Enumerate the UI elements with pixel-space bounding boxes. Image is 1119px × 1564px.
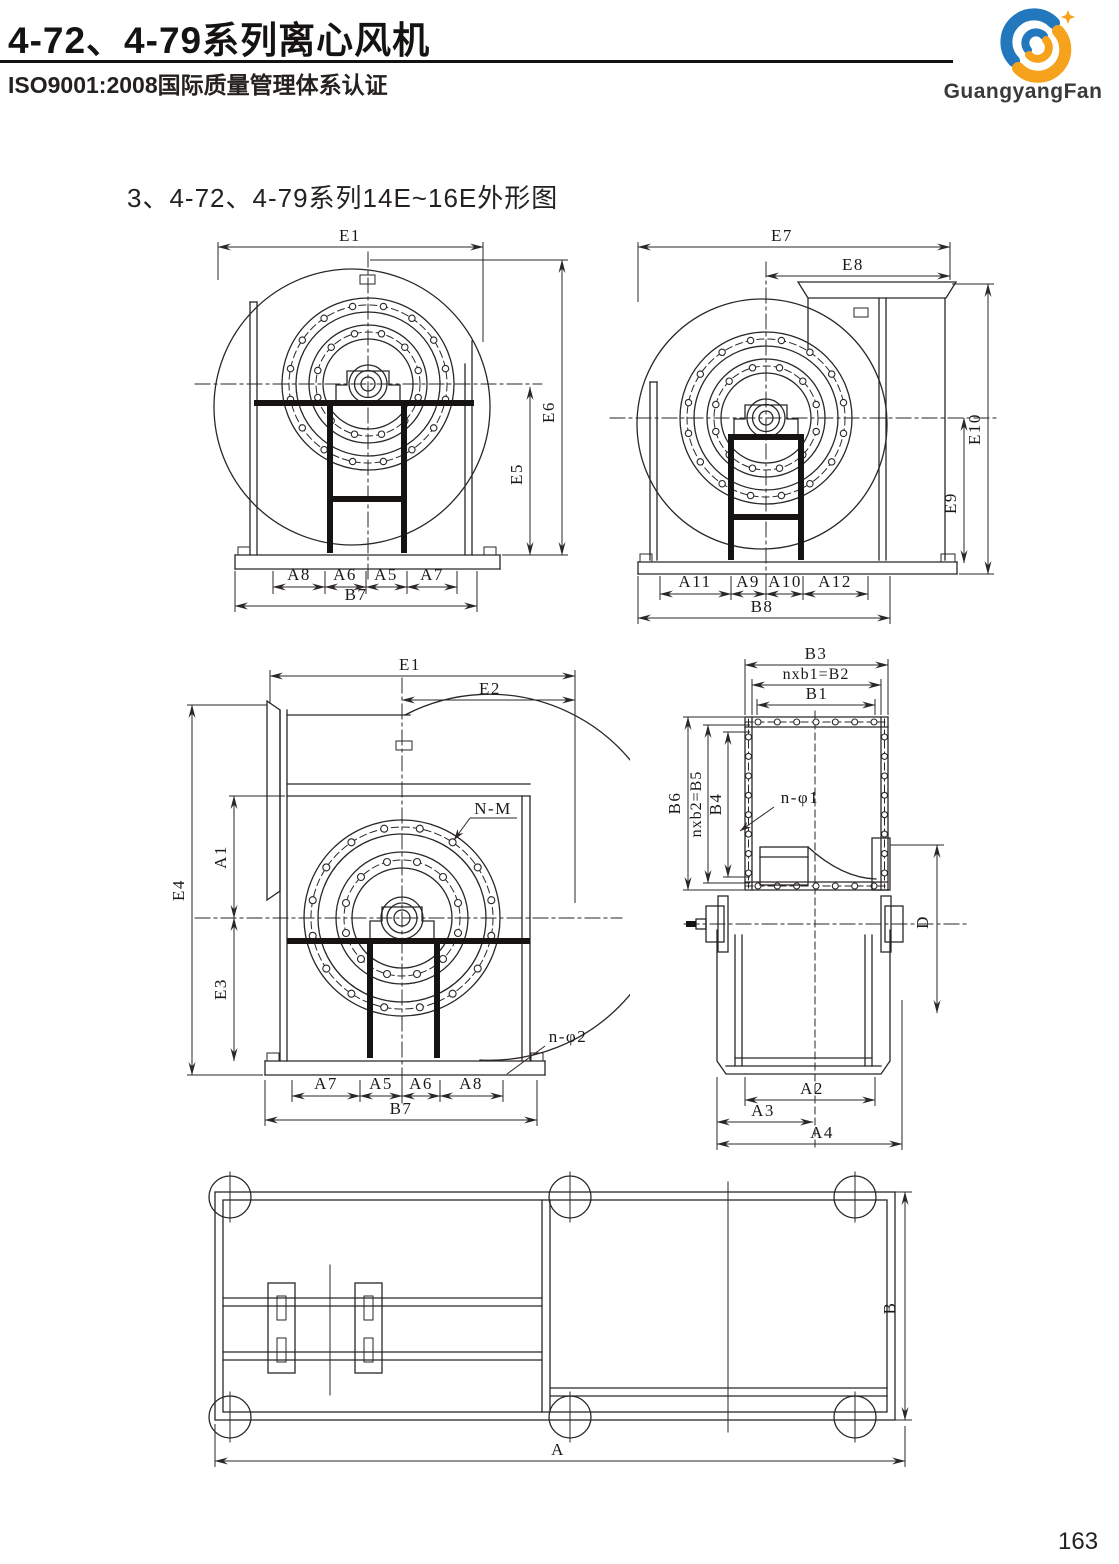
dim-label-e7: E7 xyxy=(771,226,793,245)
dim-label-e1: E1 xyxy=(339,226,361,245)
dim-bottom-chain: A11 A9 A10 A12 xyxy=(660,572,868,600)
dim-label-a4: A4 xyxy=(810,1123,834,1142)
support-stand xyxy=(287,941,530,1058)
dim-d: D xyxy=(913,845,937,1013)
dim-a4: A4 xyxy=(717,1000,902,1150)
base-frame-plan-view: B A xyxy=(190,1170,930,1490)
dim-a: A xyxy=(215,1424,905,1467)
dim-label-a11: A11 xyxy=(678,572,711,591)
centerlines xyxy=(610,262,1000,594)
catalog-page: 4-72、4-79系列离心风机 ISO9001:2008国际质量管理体系认证 G… xyxy=(0,0,1119,1564)
dim-b1: B1 xyxy=(757,684,875,715)
dim-label-b4: B4 xyxy=(706,793,725,816)
fan-housing xyxy=(267,694,630,1061)
dim-label-a6: A6 xyxy=(333,565,357,584)
support-stand xyxy=(254,403,474,553)
dim-e7: E7 xyxy=(638,226,950,302)
bolt-spec-label: N-M xyxy=(474,799,512,818)
dim-label-b7: B7 xyxy=(390,1099,413,1118)
dim-label-a3: A3 xyxy=(751,1101,775,1120)
dim-label-b5: nxb2=B5 xyxy=(688,771,705,838)
brand-name: GuangyangFan xyxy=(938,80,1108,104)
dim-e10: E10 xyxy=(952,284,994,574)
dim-label-e4: E4 xyxy=(170,879,188,901)
dim-label-e5: E5 xyxy=(507,463,526,485)
dim-label-a8: A8 xyxy=(287,565,311,584)
dim-label-e9: E9 xyxy=(941,492,960,514)
note-n-m: N-M xyxy=(454,799,517,840)
hole-spec-label: n-φ2 xyxy=(549,1027,587,1046)
bolt-col-right xyxy=(882,734,888,876)
dim-e8: E8 xyxy=(766,255,950,276)
fan-outline-view-top-left: E1 E6 E5 A8 A6 A5 A7 xyxy=(190,222,590,642)
dim-e1: E1 xyxy=(270,655,575,903)
dim-a3: A3 xyxy=(717,1077,813,1150)
dim-b4: B4 xyxy=(706,732,750,877)
dim-label-e3: E3 xyxy=(211,978,230,1000)
dim-label-b8: B8 xyxy=(751,597,774,616)
dim-label-b: B xyxy=(880,1302,899,1315)
dim-b8: B8 xyxy=(638,576,890,624)
outlet-flange-and-side-view: n-φ1 B3 nxb1=B2 B1 B6 xyxy=(660,645,1000,1170)
motor-rails xyxy=(223,1265,542,1395)
frame xyxy=(215,1182,895,1432)
dim-label-b2: nxb1=B2 xyxy=(783,666,850,683)
dim-label-a7: A7 xyxy=(314,1074,338,1093)
page-title: 4-72、4-79系列离心风机 xyxy=(8,10,430,64)
dim-label-b3: B3 xyxy=(805,645,828,663)
brand-logo-icon xyxy=(962,6,1112,84)
base xyxy=(638,554,957,574)
dim-label-a: A xyxy=(551,1440,565,1459)
dim-label-a10: A10 xyxy=(768,572,802,591)
dim-label-a1: A1 xyxy=(211,845,230,869)
dim-label-e6: E6 xyxy=(539,401,558,423)
dim-label-b7: B7 xyxy=(345,585,368,604)
bolt-col-left xyxy=(746,734,752,876)
dim-label-a6: A6 xyxy=(409,1074,433,1093)
dim-label-a12: A12 xyxy=(818,572,852,591)
lifting-lug xyxy=(396,741,412,750)
dim-label-e1: E1 xyxy=(399,655,421,674)
dim-label-e2: E2 xyxy=(479,679,501,698)
section-title: 3、4-72、4-79系列14E~16E外形图 xyxy=(127,178,558,215)
page-number: 163 xyxy=(1058,1528,1098,1556)
dim-label-e10: E10 xyxy=(965,413,984,445)
dim-e1: E1 xyxy=(218,226,483,342)
dim-label-b1: B1 xyxy=(806,684,829,703)
dim-label-e8: E8 xyxy=(842,255,864,274)
iso-certification-text: ISO9001:2008国际质量管理体系认证 xyxy=(8,66,388,100)
dim-label-b6: B6 xyxy=(665,792,684,815)
dim-label-a7: A7 xyxy=(420,565,444,584)
fan-housing xyxy=(214,269,490,555)
dim-e5: E5 xyxy=(507,387,530,555)
lifting-lug xyxy=(854,308,868,317)
fan-outline-view-middle-left: N-M n-φ2 E1 E2 E4 A1 xyxy=(170,648,630,1148)
dim-e3: E3 xyxy=(211,918,234,1061)
dim-label-a8: A8 xyxy=(459,1074,483,1093)
dim-label-a5: A5 xyxy=(374,565,398,584)
dim-label-a2: A2 xyxy=(800,1079,824,1098)
header-rule xyxy=(0,60,953,63)
dim-a1: A1 xyxy=(211,796,285,918)
dim-label-a9: A9 xyxy=(736,572,760,591)
dim-label-d: D xyxy=(913,915,932,929)
dim-bottom-chain: A7 A5 A6 A8 xyxy=(292,1074,503,1102)
hole-spec-label: n-φ1 xyxy=(781,788,819,807)
base xyxy=(265,1053,545,1075)
fan-outline-view-top-right: E7 E8 E10 E9 A11 A9 A10 xyxy=(600,222,1020,642)
dim-b: B xyxy=(880,1192,912,1420)
dim-e2: E2 xyxy=(402,679,575,700)
dim-e4: E4 xyxy=(170,705,267,1075)
dim-b7: B7 xyxy=(265,1080,537,1126)
dim-label-a5: A5 xyxy=(369,1074,393,1093)
